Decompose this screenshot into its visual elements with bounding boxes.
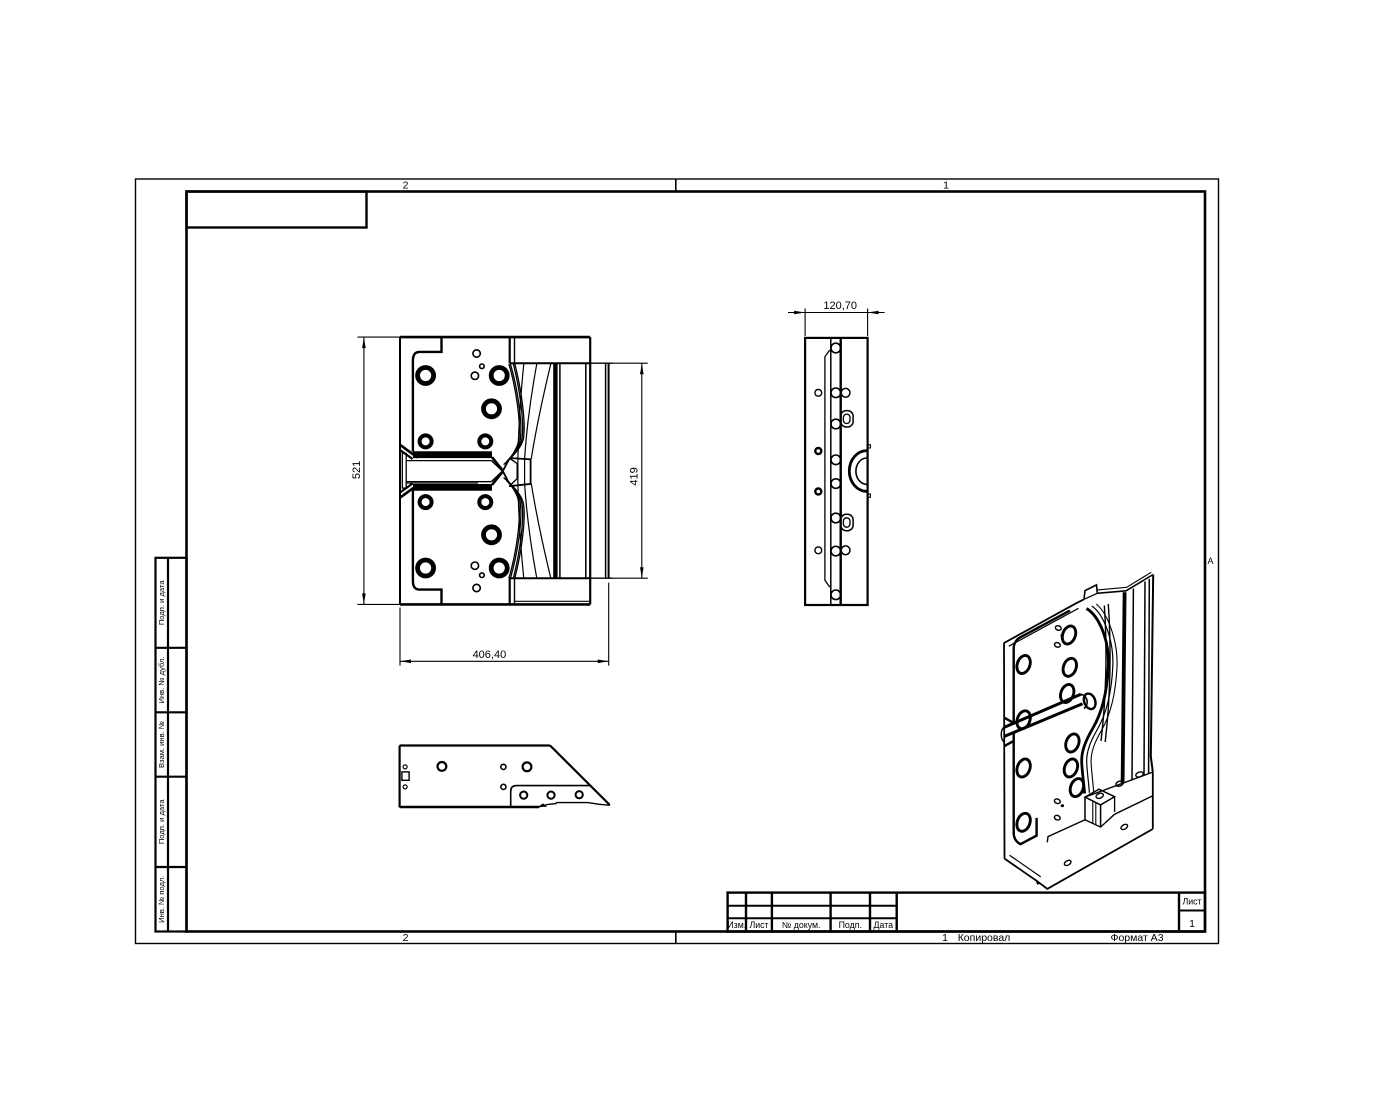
svg-text:Копировал: Копировал (958, 932, 1011, 944)
svg-text:1: 1 (1189, 918, 1195, 930)
svg-text:419: 419 (628, 467, 640, 485)
svg-text:Подп. и дата: Подп. и дата (157, 580, 166, 626)
svg-text:2: 2 (403, 932, 409, 944)
svg-text:Формат А3: Формат А3 (1110, 932, 1163, 944)
svg-text:Инв. № подл.: Инв. № подл. (157, 876, 166, 923)
svg-text:Взам. инв. №: Взам. инв. № (157, 721, 166, 768)
svg-text:1: 1 (942, 932, 948, 944)
svg-text:А: А (1207, 556, 1213, 566)
svg-text:Дата: Дата (874, 920, 894, 930)
svg-text:1: 1 (943, 180, 949, 192)
svg-text:Лист: Лист (749, 920, 768, 930)
svg-text:Подп. и дата: Подп. и дата (157, 799, 166, 845)
svg-text:406,40: 406,40 (473, 649, 507, 661)
svg-text:2: 2 (403, 180, 409, 192)
svg-text:Инв. № дубл.: Инв. № дубл. (157, 656, 166, 703)
svg-text:Лист: Лист (1182, 897, 1201, 907)
svg-text:Подп.: Подп. (839, 920, 862, 930)
svg-text:Изм.: Изм. (727, 920, 746, 930)
svg-text:120,70: 120,70 (823, 300, 857, 312)
svg-text:521: 521 (351, 461, 363, 479)
svg-text:№ докум.: № докум. (782, 920, 821, 930)
